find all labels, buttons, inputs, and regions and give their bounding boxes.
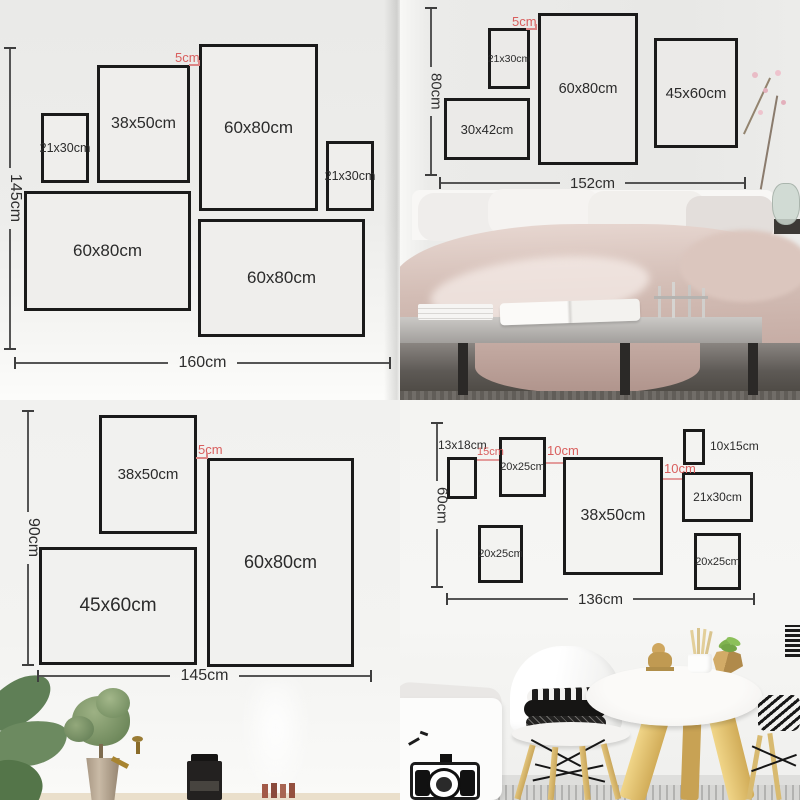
quadrant-bottom-left: 38x50cm 60x80cm 45x60cm 90cm 145cm 5cm [0,400,400,800]
camera-viewfinder [440,754,452,762]
frame-45x60: 45x60cm [654,38,738,148]
frame-10x15 [683,429,705,465]
blossom [763,88,768,93]
gallery-wall-size-guide-collage: 21x30cm 38x50cm 60x80cm 21x30cm 60x80cm … [0,0,800,800]
pencil-cup [688,654,712,673]
topiary-trunk [99,744,103,760]
candlestick [658,286,661,318]
branch [760,96,778,190]
blossom [758,110,763,115]
width-value: 152cm [560,175,625,192]
vapor [243,680,308,798]
frame-size-label-outside: 10x15cm [710,439,759,453]
frame-38x50: 38x50cm [99,415,197,534]
decor-speckle [785,625,800,657]
frame-20x25: 20x25cm [694,533,741,590]
frame-21x30: 21x30cm [41,113,89,183]
gap-tick [526,24,537,30]
frame-size-label: 38x50cm [118,466,179,483]
frame-60x80-portrait: 60x80cm [199,44,318,211]
small-bottle [280,784,286,798]
frame-size-label: 20x25cm [500,461,545,473]
candelabra-arm [654,296,708,299]
bench-leg [748,341,758,395]
small-bottle [271,783,277,798]
width-value: 145cm [170,667,238,685]
candlestick [688,285,691,318]
small-bottle [262,784,268,798]
frame-60x80: 60x80cm [538,13,638,165]
small-bottle [289,783,295,798]
gap-tick [196,453,208,459]
camera-lens-center [436,777,452,792]
frame-38x50: 38x50cm [97,65,190,183]
table-leg-back [681,715,702,800]
gap-line [477,459,499,461]
gap-annotation: 10cm [547,443,579,458]
frame-60x80: 60x80cm [207,458,354,667]
blossom [775,70,781,76]
frame-60x80-landscape: 60x80cm [24,191,191,311]
frame-size-label: 20x25cm [695,556,740,568]
height-dimension: 145cm [3,47,17,350]
wooden-stick [697,628,700,657]
gap-line [663,478,682,480]
frame-45x60: 45x60cm [39,547,197,665]
frame-21x30: 21x30cm [682,472,753,522]
frame-size-label: 38x50cm [581,507,646,525]
topiary-foliage [96,688,130,718]
frame-13x18 [447,457,477,499]
quadrant-top-left: 21x30cm 38x50cm 60x80cm 21x30cm 60x80cm … [0,0,400,400]
frame-size-label: 21x30cm [693,490,742,504]
frame-21x30: 21x30cm [488,28,530,89]
camera-grip [460,770,475,796]
frame-20x25: 20x25cm [499,437,546,497]
frame-60x80-landscape: 60x80cm [198,219,365,337]
frame-size-label: 30x42cm [461,122,514,137]
frame-20x25: 20x25cm [478,525,523,583]
height-value: 60cm [434,481,451,530]
frame-size-label: 60x80cm [224,118,293,138]
frame-size-label: 60x80cm [73,241,142,261]
width-value: 160cm [168,354,236,372]
topiary-foliage [64,716,94,742]
quadrant-top-right: 21x30cm 60x80cm 45x60cm 30x42cm 80cm 152… [400,0,800,400]
side-chair-fabric [758,695,800,731]
width-dimension: 136cm [446,592,755,606]
book-stack [418,304,493,320]
wooden-toy-base [646,667,674,671]
candlestick [672,282,675,318]
quadrant-bottom-right: 20x25cm 38x50cm 21x30cm 20x25cm 20x25cm … [400,400,800,800]
wall-shadow [384,0,400,400]
watering-can-knob [132,736,143,742]
geometric-pot [713,650,743,673]
frame-size-label: 60x80cm [559,81,618,97]
height-dimension: 90cm [21,410,35,666]
height-value: 80cm [428,67,445,116]
frame-size-label: 45x60cm [666,85,727,102]
width-value: 136cm [568,591,633,608]
frame-size-label: 21x30cm [488,53,531,65]
frame-size-label: 20x25cm [478,548,523,560]
watering-can [123,752,159,794]
gap-annotation: 10cm [664,461,696,476]
height-value: 90cm [24,512,42,563]
frame-21x30: 21x30cm [326,141,374,211]
frame-size-label: 60x80cm [244,552,317,573]
table-top [586,666,762,726]
jar-label [190,781,219,791]
frame-size-label: 21x30cm [325,169,376,183]
width-dimension: 160cm [14,356,391,370]
width-dimension: 145cm [37,669,372,683]
duvet-fold [680,230,800,302]
frame-30x42: 30x42cm [444,98,530,160]
frame-38x50: 38x50cm [563,457,663,575]
width-dimension: 152cm [439,176,746,190]
duvet-drape [475,335,700,393]
frame-size-label: 21x30cm [40,141,91,155]
frame-size-label: 38x50cm [111,115,176,133]
height-dimension: 60cm [430,422,444,588]
frame-size-label: 45x60cm [79,595,156,617]
glass-vase [772,183,800,225]
blossom [781,100,786,105]
height-value: 145cm [6,168,24,228]
bench-leg [620,341,630,395]
bench-leg [458,341,468,395]
chair-seat [512,722,630,746]
gap-annotation: 15cm [477,446,504,458]
frame-size-label: 60x80cm [247,268,316,288]
wooden-stick [690,630,697,657]
candlestick [702,288,705,318]
gap-tick [189,60,200,66]
gap-line [546,462,563,464]
branch [743,77,771,134]
height-dimension: 80cm [424,7,438,176]
blossom [752,72,758,78]
